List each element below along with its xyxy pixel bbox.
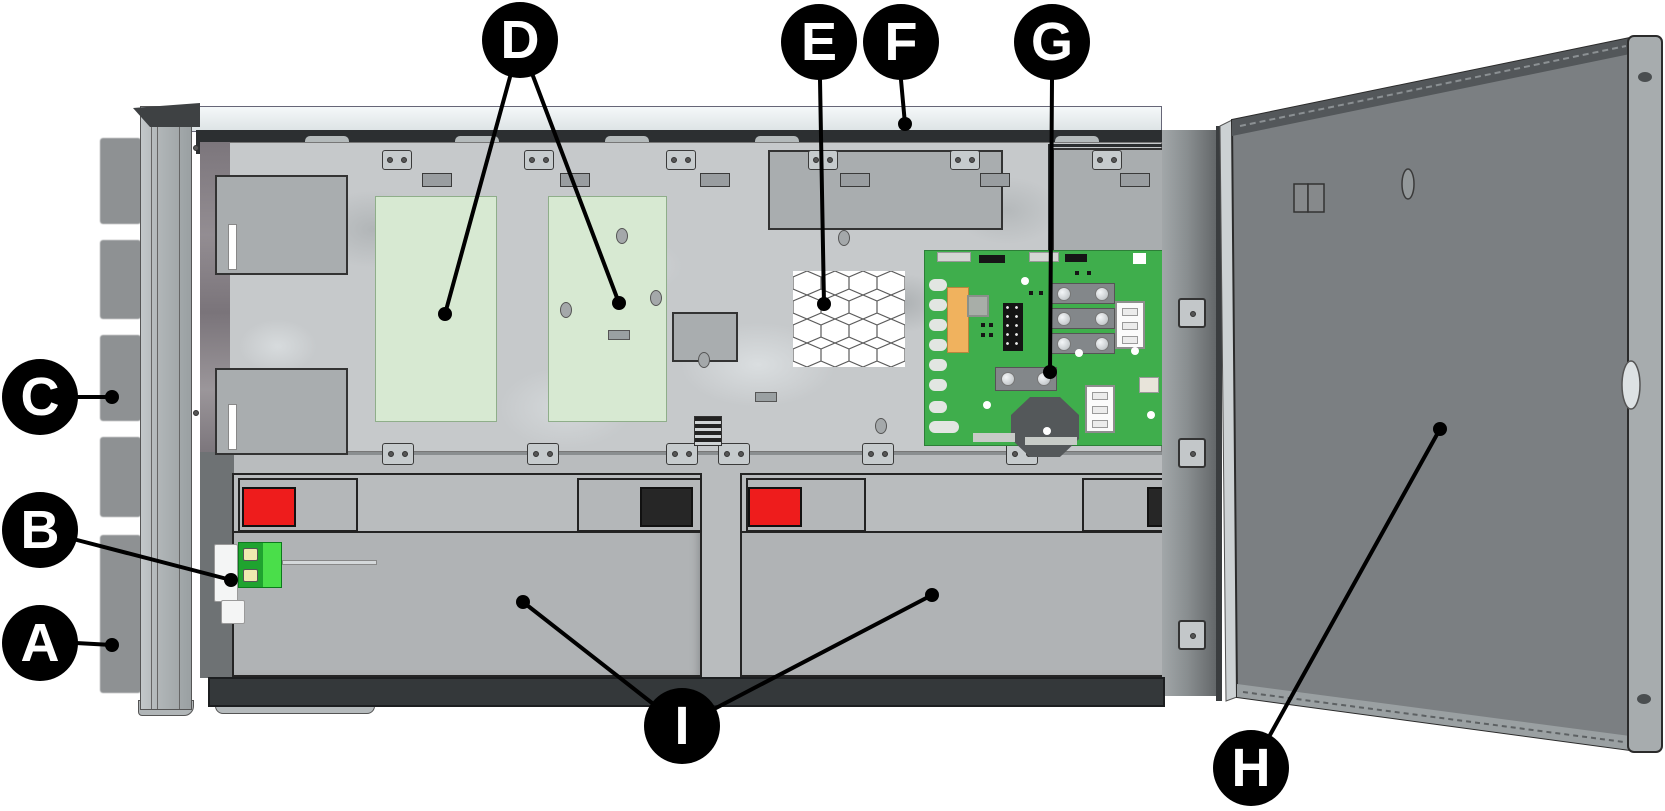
- wall-bracket: [1178, 620, 1206, 650]
- enclosure-diagram: A B C D E F G H I: [0, 0, 1665, 811]
- callout-f: F: [863, 4, 939, 80]
- pcb-edge-slot: [929, 299, 947, 311]
- panel-slot: [560, 173, 590, 187]
- callout-h: H: [1213, 730, 1289, 806]
- pcb-terminal-connector: [1115, 301, 1145, 349]
- pcb-edge-slot: [929, 279, 947, 291]
- pcb-hole: [1075, 349, 1083, 357]
- enclosure-top-edge: [150, 106, 1162, 132]
- pcb-hole: [983, 401, 991, 409]
- pcb-terminal-connector: [1085, 385, 1115, 433]
- terminal-screw: [243, 569, 258, 582]
- panel-clip: [524, 150, 554, 170]
- panel-clip: [666, 150, 696, 170]
- pcb-ic-chip: [967, 295, 989, 317]
- callout-e: E: [781, 4, 857, 80]
- pcb-pin-header: [979, 255, 1005, 263]
- pcb-edge-slot: [929, 359, 947, 371]
- door-bottom-fold: [1237, 684, 1630, 750]
- enclosure-door: [1232, 38, 1630, 750]
- pcb-edge-slot: [929, 339, 947, 351]
- pcb-edge-slot: [929, 421, 959, 433]
- panel-slot: [980, 173, 1010, 187]
- panel-clip: [808, 150, 838, 170]
- panel-slot: [422, 173, 452, 187]
- leader-dot-h: [1433, 422, 1447, 436]
- pcb-pad: [1025, 437, 1077, 445]
- mounting-tab-2: [100, 240, 141, 319]
- terminal-bracket-tab: [221, 600, 245, 624]
- right-interior-wall: [1162, 130, 1220, 696]
- terminal-pin: [282, 560, 377, 565]
- panel-clip: [718, 443, 750, 465]
- panel-cutout: [875, 418, 887, 434]
- door-oval-hole: [1402, 169, 1414, 199]
- pcb-relay-2: [1051, 308, 1115, 329]
- panel-notch: [755, 392, 777, 402]
- mounting-tab-5: [100, 535, 141, 693]
- panel-clip: [382, 150, 412, 170]
- pcb-connector: [1139, 377, 1159, 393]
- callout-c: C: [2, 359, 78, 435]
- panel-clip: [862, 443, 894, 465]
- callout-i: I: [644, 688, 720, 764]
- leader-line-h: [1270, 429, 1440, 735]
- door-bottom-perforation: [1243, 692, 1624, 742]
- pcb-hole: [1043, 427, 1051, 435]
- pcb-edge-slot: [929, 401, 947, 413]
- callout-d-label: D: [501, 13, 540, 67]
- door-top-perforation: [1240, 46, 1626, 126]
- panel-slot: [840, 173, 870, 187]
- pcb-hole: [1147, 411, 1155, 419]
- panel-clip: [950, 150, 980, 170]
- hinge-screw-hole: [1638, 72, 1652, 82]
- door-latch: [1308, 184, 1324, 212]
- callout-c-label: C: [21, 370, 60, 424]
- panel-cutout: [616, 228, 628, 244]
- pcb-pad: [973, 433, 1015, 442]
- panel-clip: [1092, 150, 1122, 170]
- door-gap-shadow: [1216, 126, 1222, 701]
- callout-b: B: [2, 492, 78, 568]
- pcb-relay-1: [1051, 283, 1115, 304]
- pcb-connector: [1029, 252, 1059, 262]
- pcb-edge-slot: [929, 319, 947, 331]
- pcb-hole: [1131, 347, 1139, 355]
- door-left-edge: [1220, 120, 1237, 701]
- callout-d: D: [482, 2, 558, 78]
- module-position-1: [375, 196, 497, 422]
- transformer-notch: [228, 224, 237, 270]
- left-front-rail: [140, 106, 192, 710]
- wall-bracket: [1178, 298, 1206, 328]
- main-pcb: [924, 250, 1164, 446]
- pcb-pin-header: [1065, 254, 1087, 262]
- pcb-edge-slot: [929, 379, 947, 391]
- panel-cutout: [698, 352, 710, 368]
- door-thumb-notch: [1622, 361, 1640, 409]
- pcb-connector: [937, 252, 971, 262]
- mounting-tab-4: [100, 437, 141, 517]
- panel-slot: [1120, 173, 1150, 187]
- panel-cutout: [838, 230, 850, 246]
- panel-cutout: [650, 290, 662, 306]
- panel-clip: [527, 443, 559, 465]
- pcb-cutout: [1133, 253, 1146, 264]
- battery-1-red-terminal-cover: [242, 487, 296, 527]
- terminal-bracket: [214, 544, 238, 602]
- callout-h-label: H: [1232, 741, 1271, 795]
- rail-screw: [193, 410, 199, 416]
- panel-clip: [666, 443, 698, 465]
- callout-e-label: E: [801, 15, 837, 69]
- battery-1-black-terminal-cover: [640, 487, 693, 527]
- callout-g: G: [1014, 4, 1090, 80]
- callout-a: A: [2, 605, 78, 681]
- battery-2-red-terminal-cover: [748, 487, 802, 527]
- door-top-fold: [1232, 38, 1630, 136]
- terminal-screw: [243, 548, 258, 561]
- battery-terminal-block: [238, 542, 282, 588]
- callout-g-label: G: [1031, 15, 1073, 69]
- panel-clip: [382, 443, 414, 465]
- callout-b-label: B: [21, 503, 60, 557]
- panel-cutout: [560, 302, 572, 318]
- transformer-notch: [228, 404, 237, 450]
- hinge-screw-hole: [1637, 694, 1651, 704]
- callout-f-label: F: [885, 15, 918, 69]
- door-hinge-strip: [1628, 36, 1662, 752]
- callout-i-label: I: [674, 699, 689, 753]
- honeycomb-knockout: [793, 271, 905, 367]
- mounting-tab-3: [100, 335, 141, 421]
- rail-screw: [193, 145, 199, 151]
- pcb-header-block: [1003, 303, 1023, 351]
- small-component: [694, 416, 722, 446]
- callout-a-label: A: [21, 616, 60, 670]
- panel-slot: [700, 173, 730, 187]
- pcb-relay-4: [995, 367, 1057, 391]
- pcb-orange-component: [947, 287, 969, 353]
- mounting-tab-1: [100, 138, 141, 224]
- panel-notch: [608, 330, 630, 340]
- pcb-relay-3: [1051, 333, 1115, 354]
- pcb-hole: [1021, 277, 1029, 285]
- door-latch: [1294, 184, 1308, 212]
- wall-bracket: [1178, 438, 1206, 468]
